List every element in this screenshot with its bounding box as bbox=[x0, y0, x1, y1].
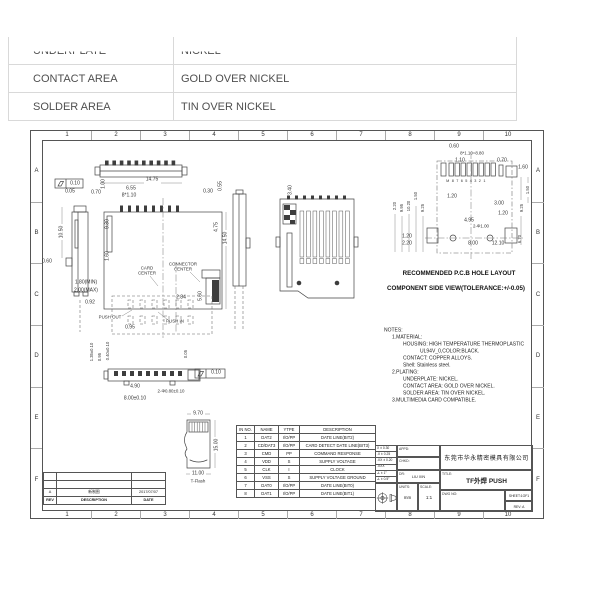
chkd-label: CHKD: bbox=[399, 459, 410, 463]
zone-number: 9 bbox=[435, 511, 484, 519]
spec-value: GOLD OVER NICKEL bbox=[181, 73, 289, 85]
pin-table-row: 8DAT1I/O/PPDATE LINE(BIT1) bbox=[237, 490, 376, 498]
dwg-no-cell: DWG NO: bbox=[440, 490, 505, 512]
revision-cell: 2017/07/07 bbox=[132, 489, 166, 497]
pin-table-cell: I/O/PP bbox=[279, 482, 300, 490]
page: { "top_table": { "rows": [ {"label": "UN… bbox=[0, 0, 600, 600]
pin-table-cell: COMMAND RESPONSE bbox=[300, 450, 376, 458]
pin-table-row: 7DAT0I/O/PPDATE LINE(BIT0) bbox=[237, 482, 376, 490]
zone-number: 3 bbox=[141, 131, 190, 140]
zone-letter: A bbox=[532, 141, 544, 203]
pin-table-header-cell: IN NO. bbox=[237, 426, 255, 434]
pin-table-cell: 1 bbox=[237, 434, 255, 442]
pin-table-cell: DATE LINE(BIT1) bbox=[300, 490, 376, 498]
zone-band-bottom: 12345678910 bbox=[43, 511, 532, 519]
rev-value: REV: A bbox=[506, 502, 532, 511]
revision-cell: 新制图 bbox=[57, 489, 132, 497]
rev-cell: REV: A bbox=[505, 501, 533, 512]
zone-letter: C bbox=[31, 264, 42, 326]
zone-number: 8 bbox=[386, 131, 435, 140]
zone-number: 10 bbox=[484, 131, 532, 140]
drawn-by-value: LIU XIN bbox=[398, 471, 439, 482]
pin-table-cell: 7 bbox=[237, 482, 255, 490]
spec-label: CONTACT AREA bbox=[33, 73, 118, 85]
third-angle-projection-icon bbox=[376, 484, 397, 512]
tolerance-box: X ± 0.30.X ± 0.25.XX ± 0.20.XXX∠ ± 1°∠ ±… bbox=[375, 445, 397, 483]
pin-table-row: 4VDDSSUPPLY VOLTAGE bbox=[237, 458, 376, 466]
units-value: mm bbox=[398, 484, 417, 511]
revision-table: A新制图2017/07/07REVDESCRIPTIONDATE bbox=[43, 472, 166, 505]
zone-number: 5 bbox=[239, 511, 288, 519]
revision-cell: REV bbox=[44, 497, 57, 505]
pin-table-cell: VDD bbox=[255, 458, 279, 466]
zone-number: 7 bbox=[337, 511, 386, 519]
pin-table-cell: I/O/PP bbox=[279, 434, 300, 442]
spec-cell: NICKEL bbox=[174, 37, 516, 64]
spec-label: SOLDER AREA bbox=[33, 101, 111, 113]
pin-table-cell: DAT1 bbox=[255, 490, 279, 498]
zone-number: 4 bbox=[190, 511, 239, 519]
pin-table-cell: CARD DETECT DATE LINE(BIT3) bbox=[300, 442, 376, 450]
spec-value: TIN OVER NICKEL bbox=[181, 101, 276, 113]
sheet-cell: SHEET:1OF1 bbox=[505, 490, 533, 501]
pin-table-cell: DAT0 bbox=[255, 482, 279, 490]
zone-number: 7 bbox=[337, 131, 386, 140]
zone-letter: B bbox=[532, 203, 544, 265]
pin-table-cell: 8 bbox=[237, 490, 255, 498]
pin-table-cell: DAT2 bbox=[255, 434, 279, 442]
pin-table-cell: CMD bbox=[255, 450, 279, 458]
zone-number: 1 bbox=[43, 131, 92, 140]
company-name: 东莞市华永精密模具有限公司 bbox=[441, 446, 532, 469]
revision-cell bbox=[132, 481, 166, 489]
tolerance-row: ∠ ± 0.5° bbox=[376, 477, 396, 482]
zone-number: 1 bbox=[43, 511, 92, 519]
pin-table-cell: 2 bbox=[237, 442, 255, 450]
pin-table-cell: DATE LINE(BIT2) bbox=[300, 434, 376, 442]
zone-letter: C bbox=[532, 264, 544, 326]
pin-table-cell: I/O/PP bbox=[279, 442, 300, 450]
scale-value: 1:1 bbox=[419, 484, 439, 511]
spec-row-underplate: UNDERPLATE NICKEL bbox=[9, 37, 516, 65]
sheet-number: SHEET:1OF1 bbox=[506, 491, 532, 500]
zone-letter: D bbox=[31, 326, 42, 388]
company-cell: 东莞市华永精密模具有限公司 bbox=[440, 445, 533, 470]
pin-table-cell: 6 bbox=[237, 474, 255, 482]
pin-table-cell: CLOCK bbox=[300, 466, 376, 474]
pin-table-row: 2CD/DAT3I/O/PPCARD DETECT DATE LINE(BIT3… bbox=[237, 442, 376, 450]
revision-cell: DESCRIPTION bbox=[57, 497, 132, 505]
zone-number: 8 bbox=[386, 511, 435, 519]
pin-table-cell: DATE LINE(BIT0) bbox=[300, 482, 376, 490]
zone-band-left: ABCDEF bbox=[31, 141, 42, 510]
title-cell: TITLE: TF外焊 PUSH bbox=[440, 470, 533, 490]
pin-table-cell: CD/DAT3 bbox=[255, 442, 279, 450]
zone-letter: E bbox=[31, 388, 42, 450]
zone-letter: E bbox=[532, 388, 544, 450]
dwg-no-label: DWG NO: bbox=[442, 492, 457, 496]
pin-table-header-row: IN NO.NAMEYTPEDESCRIPTION bbox=[237, 426, 376, 434]
pin-table-cell: SUPPLY VOLTAGE GROUND bbox=[300, 474, 376, 482]
pin-table-cell: PP bbox=[279, 450, 300, 458]
zone-number: 6 bbox=[288, 131, 337, 140]
title-block: X ± 0.30.X ± 0.25.XX ± 0.20.XXX∠ ± 1°∠ ±… bbox=[375, 445, 533, 512]
projection-cell bbox=[375, 483, 397, 512]
zone-number: 2 bbox=[92, 131, 141, 140]
zone-letter: D bbox=[532, 326, 544, 388]
zone-number: 6 bbox=[288, 511, 337, 519]
pin-table: IN NO.NAMEYTPEDESCRIPTION1DAT2I/O/PPDATE… bbox=[236, 425, 376, 498]
revision-cell bbox=[132, 473, 166, 481]
zone-number: 2 bbox=[92, 511, 141, 519]
revision-row: REVDESCRIPTIONDATE bbox=[44, 497, 166, 505]
units-cell: UNITS: mm bbox=[397, 483, 418, 512]
spec-cell: CONTACT AREA bbox=[9, 65, 174, 92]
appd-label: APPD: bbox=[399, 447, 409, 451]
revision-cell bbox=[57, 473, 132, 481]
spec-row-contact-area: CONTACT AREA GOLD OVER NICKEL bbox=[9, 65, 516, 93]
revision-cell bbox=[44, 481, 57, 489]
spec-cell: SOLDER AREA bbox=[9, 93, 174, 120]
pin-table-cell: 4 bbox=[237, 458, 255, 466]
pin-table-row: 5CLKICLOCK bbox=[237, 466, 376, 474]
drawing-title: TF外焊 PUSH bbox=[441, 471, 532, 489]
zone-number: 5 bbox=[239, 131, 288, 140]
spec-cell: TIN OVER NICKEL bbox=[174, 93, 516, 120]
pin-table-cell: S bbox=[279, 474, 300, 482]
spec-cell: UNDERPLATE bbox=[9, 37, 174, 64]
zone-band-top: 12345678910 bbox=[43, 131, 532, 140]
revision-row bbox=[44, 481, 166, 489]
pin-table-cell: CLK bbox=[255, 466, 279, 474]
pin-table-cell: S bbox=[279, 458, 300, 466]
zone-band-right: ABCDEF bbox=[532, 141, 544, 510]
pin-table-header-cell: NAME bbox=[255, 426, 279, 434]
spec-value: NICKEL bbox=[181, 45, 221, 57]
pin-table-cell: VSS bbox=[255, 474, 279, 482]
spec-cell: GOLD OVER NICKEL bbox=[174, 65, 516, 92]
spec-row-solder-area: SOLDER AREA TIN OVER NICKEL bbox=[9, 93, 516, 121]
pin-table-row: 1DAT2I/O/PPDATE LINE(BIT2) bbox=[237, 434, 376, 442]
scale-cell: SCALE: 1:1 bbox=[418, 483, 440, 512]
pin-table-cell: 5 bbox=[237, 466, 255, 474]
zone-number: 4 bbox=[190, 131, 239, 140]
pin-table-row: 6VSSSSUPPLY VOLTAGE GROUND bbox=[237, 474, 376, 482]
revision-cell: A bbox=[44, 489, 57, 497]
pin-table-cell: 3 bbox=[237, 450, 255, 458]
pin-table-cell: I bbox=[279, 466, 300, 474]
pin-table-row: 3CMDPPCOMMAND RESPONSE bbox=[237, 450, 376, 458]
appd-cell: APPD: bbox=[397, 445, 440, 457]
spec-label: UNDERPLATE bbox=[33, 45, 106, 57]
spec-table: UNDERPLATE NICKEL CONTACT AREA GOLD OVER… bbox=[8, 37, 517, 121]
revision-cell bbox=[57, 481, 132, 489]
zone-letter: F bbox=[31, 449, 42, 510]
revision-row: A新制图2017/07/07 bbox=[44, 489, 166, 497]
zone-letter: F bbox=[532, 449, 544, 510]
chkd-cell: CHKD: bbox=[397, 457, 440, 470]
zone-number: 9 bbox=[435, 131, 484, 140]
pin-table-cell: SUPPLY VOLTAGE bbox=[300, 458, 376, 466]
zone-number: 10 bbox=[484, 511, 532, 519]
drawn-by-cell: DR: LIU XIN bbox=[397, 470, 440, 483]
pin-table-cell: I/O/PP bbox=[279, 490, 300, 498]
pin-table-header-cell: DESCRIPTION bbox=[300, 426, 376, 434]
zone-letter: B bbox=[31, 203, 42, 265]
revision-row bbox=[44, 473, 166, 481]
zone-letter: A bbox=[31, 141, 42, 203]
pin-table-header-cell: YTPE bbox=[279, 426, 300, 434]
zone-number: 3 bbox=[141, 511, 190, 519]
revision-cell bbox=[44, 473, 57, 481]
revision-cell: DATE bbox=[132, 497, 166, 505]
